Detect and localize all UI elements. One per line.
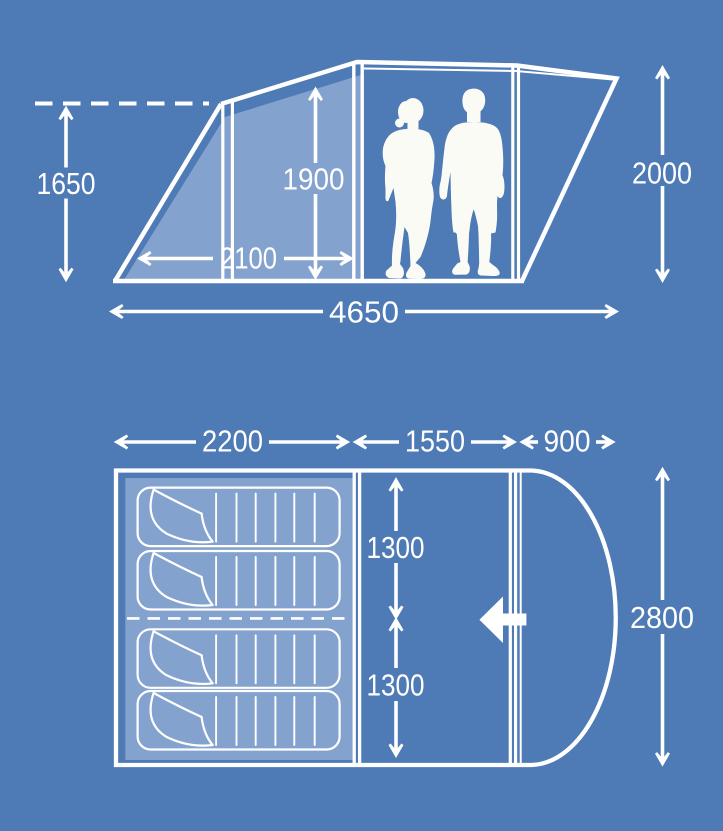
- svg-text:1900: 1900: [283, 162, 345, 197]
- svg-text:900: 900: [544, 424, 591, 459]
- svg-text:1300: 1300: [367, 530, 425, 565]
- svg-text:4650: 4650: [329, 295, 399, 330]
- svg-text:1300: 1300: [367, 668, 425, 703]
- svg-text:2200: 2200: [202, 424, 263, 459]
- svg-text:1650: 1650: [37, 166, 96, 201]
- svg-text:1550: 1550: [405, 424, 465, 459]
- svg-text:2100: 2100: [220, 241, 277, 276]
- svg-text:2000: 2000: [632, 156, 692, 191]
- svg-text:2800: 2800: [630, 600, 694, 635]
